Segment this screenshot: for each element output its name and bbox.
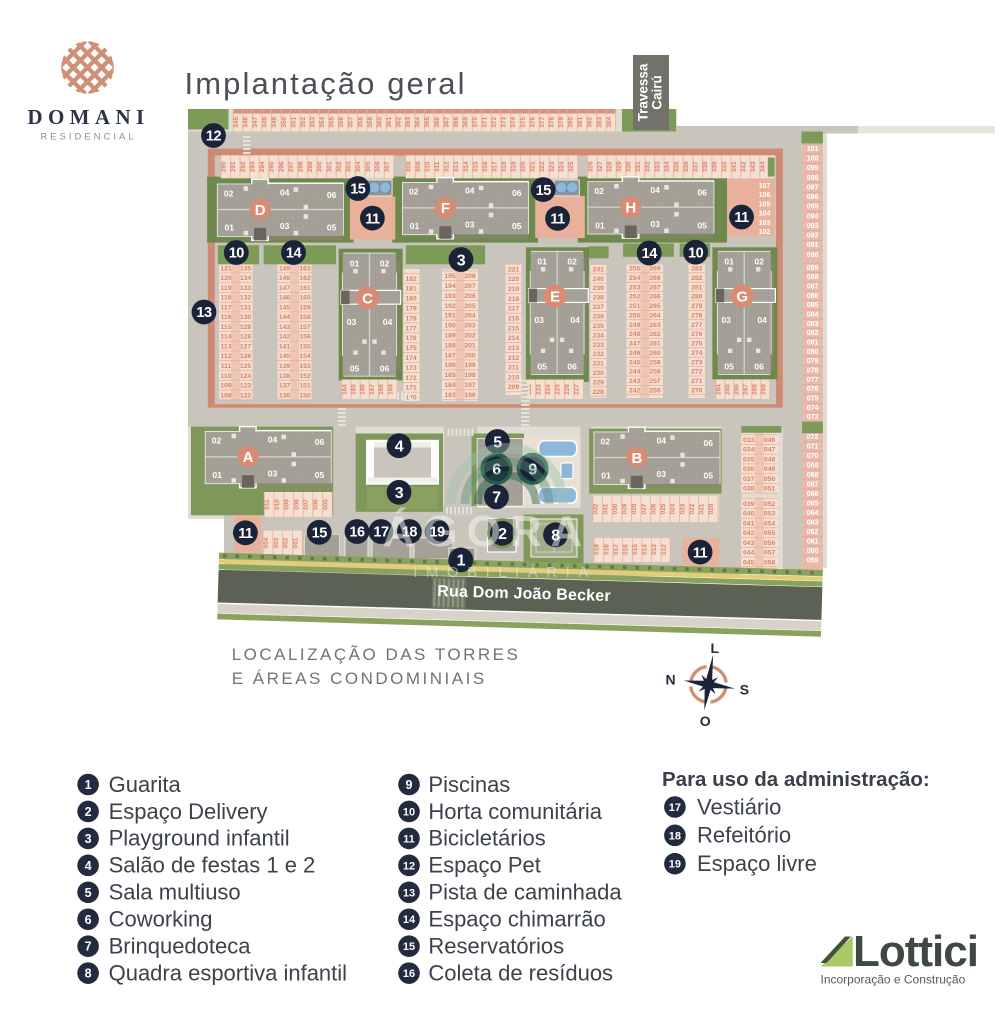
svg-text:027: 027 [641,503,648,514]
svg-text:6: 6 [85,913,92,927]
svg-text:134: 134 [240,275,252,282]
svg-text:383: 383 [596,117,603,128]
svg-text:370: 370 [472,117,479,128]
svg-text:187: 187 [444,352,456,359]
svg-text:213: 213 [508,345,520,352]
svg-text:05: 05 [350,363,360,373]
svg-text:275: 275 [691,341,703,348]
svg-text:115: 115 [221,324,232,331]
svg-text:013: 013 [651,544,658,555]
svg-text:306: 306 [374,161,381,172]
svg-text:05: 05 [512,221,522,231]
svg-text:8: 8 [85,967,92,981]
svg-text:05: 05 [724,362,734,372]
svg-text:140: 140 [279,353,291,360]
svg-text:351: 351 [290,117,297,128]
svg-text:025: 025 [660,503,667,514]
svg-text:319: 319 [511,161,518,172]
svg-text:227: 227 [574,384,581,395]
svg-text:D: D [255,202,266,219]
svg-text:085: 085 [807,302,819,309]
svg-text:098: 098 [807,175,819,182]
svg-text:04: 04 [383,317,393,327]
svg-text:313: 313 [453,161,460,172]
svg-text:11: 11 [693,545,708,561]
svg-text:117: 117 [221,304,232,311]
svg-text:089: 089 [807,265,819,272]
svg-text:2: 2 [85,805,92,819]
svg-text:199: 199 [464,362,476,369]
svg-text:369: 369 [462,117,469,128]
svg-text:077: 077 [807,377,819,384]
svg-text:171: 171 [405,385,417,392]
svg-text:152: 152 [299,373,311,380]
svg-text:Para uso da administração:: Para uso da administração: [662,768,930,791]
svg-text:334: 334 [664,161,671,172]
svg-text:203: 203 [464,323,476,330]
svg-text:148: 148 [279,275,291,282]
svg-text:261: 261 [649,341,661,348]
svg-text:03: 03 [465,220,475,230]
svg-text:359: 359 [367,117,374,128]
svg-text:Salão de festas 1 e 2: Salão de festas 1 e 2 [109,853,316,878]
svg-text:04: 04 [657,435,667,445]
svg-text:024: 024 [670,503,677,514]
svg-text:317: 317 [491,161,498,172]
svg-text:03: 03 [347,317,357,327]
svg-text:Horta comunitária: Horta comunitária [428,799,602,824]
svg-text:271: 271 [691,378,703,385]
svg-text:026: 026 [650,503,657,514]
svg-text:LOCALIZAÇÃO DAS TORRES: LOCALIZAÇÃO DAS TORRES [232,645,521,664]
svg-text:104: 104 [759,211,771,218]
svg-text:035: 035 [743,456,755,463]
svg-text:009: 009 [284,499,291,510]
svg-text:281: 281 [691,284,703,291]
svg-text:048: 048 [764,456,776,463]
svg-text:063: 063 [807,519,819,526]
svg-text:340: 340 [721,161,728,172]
svg-text:342: 342 [740,161,747,172]
svg-text:G: G [736,289,748,306]
svg-text:Coworking: Coworking [109,907,213,932]
svg-text:283: 283 [691,266,703,273]
svg-text:292: 292 [240,161,247,172]
svg-text:059: 059 [807,557,819,564]
svg-text:3: 3 [457,252,466,269]
svg-text:298: 298 [298,161,305,172]
svg-text:204: 204 [464,313,476,320]
svg-text:086: 086 [807,293,819,300]
svg-text:051: 051 [764,486,776,493]
svg-text:381: 381 [577,117,584,128]
svg-text:377: 377 [539,117,546,128]
svg-text:330: 330 [626,161,633,172]
svg-text:157: 157 [299,324,311,331]
svg-text:039: 039 [743,501,755,508]
svg-text:05: 05 [704,471,714,481]
svg-text:295: 295 [269,161,276,172]
svg-text:04: 04 [465,186,475,196]
svg-text:226: 226 [564,384,571,395]
svg-text:274: 274 [691,350,703,357]
svg-text:343: 343 [750,161,757,172]
svg-text:150: 150 [299,392,311,399]
svg-text:348: 348 [262,117,269,128]
svg-text:143: 143 [279,324,291,331]
svg-text:380: 380 [568,117,575,128]
svg-text:158: 158 [299,314,311,321]
svg-text:248: 248 [629,331,641,338]
svg-text:338: 338 [702,161,709,172]
svg-text:04: 04 [650,185,660,195]
svg-text:04: 04 [280,187,290,197]
svg-text:144: 144 [279,314,291,321]
svg-text:06: 06 [754,362,764,372]
svg-text:15: 15 [536,183,552,199]
svg-text:309: 309 [415,161,422,172]
svg-text:06: 06 [380,363,390,373]
svg-text:112: 112 [221,353,232,360]
svg-text:311: 311 [434,161,441,172]
svg-text:327: 327 [597,161,604,172]
svg-text:Travessa: Travessa [636,63,651,121]
svg-text:Refeitório: Refeitório [697,823,791,848]
svg-text:320: 320 [520,161,527,172]
svg-text:210: 210 [508,374,520,381]
svg-text:355: 355 [329,117,336,128]
svg-text:197: 197 [464,382,476,389]
svg-text:230: 230 [593,370,605,377]
svg-text:384: 384 [606,117,613,128]
svg-text:14: 14 [403,914,416,926]
svg-text:366: 366 [434,117,441,128]
svg-text:365: 365 [424,117,431,128]
svg-text:139: 139 [279,363,291,370]
svg-text:214: 214 [508,335,520,342]
svg-text:305: 305 [365,161,372,172]
svg-text:9: 9 [406,778,413,792]
svg-text:367: 367 [443,117,450,128]
svg-text:362: 362 [396,117,403,128]
svg-text:235: 235 [593,323,605,330]
svg-text:219: 219 [508,286,520,293]
svg-text:267: 267 [649,284,661,291]
svg-text:276: 276 [691,331,703,338]
svg-text:373: 373 [501,117,508,128]
svg-text:003: 003 [273,537,280,548]
svg-text:141: 141 [279,344,291,351]
svg-text:352: 352 [300,117,307,128]
svg-text:363: 363 [405,117,412,128]
svg-text:Quadra esportiva infantil: Quadra esportiva infantil [109,960,347,985]
svg-text:03: 03 [268,469,278,479]
svg-text:022: 022 [689,503,696,514]
svg-text:153: 153 [299,363,311,370]
svg-text:E ÁREAS CONDOMINIAIS: E ÁREAS CONDOMINIAIS [232,669,487,688]
svg-text:040: 040 [743,511,755,518]
svg-text:Vestiário: Vestiário [697,794,781,819]
svg-text:Coleta de resíduos: Coleta de resíduos [428,960,613,985]
svg-text:042: 042 [743,530,755,537]
svg-text:312: 312 [444,161,451,172]
svg-text:318: 318 [501,161,508,172]
svg-text:284: 284 [715,384,722,395]
svg-text:116: 116 [221,314,232,321]
svg-text:321: 321 [530,161,537,172]
svg-text:06: 06 [512,188,522,198]
svg-text:159: 159 [299,304,311,311]
svg-text:179: 179 [405,306,417,313]
svg-text:166: 166 [360,384,367,395]
svg-text:127: 127 [240,344,252,351]
svg-text:242: 242 [629,387,641,394]
svg-text:251: 251 [629,303,641,310]
svg-text:03: 03 [721,315,731,325]
svg-text:188: 188 [444,342,456,349]
svg-text:C: C [362,290,373,307]
svg-text:16: 16 [349,525,365,541]
svg-text:058: 058 [764,559,776,566]
svg-text:180: 180 [405,296,417,303]
svg-text:023: 023 [679,503,686,514]
svg-text:133: 133 [240,285,252,292]
svg-text:4: 4 [395,439,404,456]
svg-text:264: 264 [649,312,661,319]
svg-text:Reservatórios: Reservatórios [428,934,564,959]
svg-text:11: 11 [550,212,565,228]
svg-text:038: 038 [743,486,755,493]
svg-text:374: 374 [510,117,517,128]
svg-text:285: 285 [724,384,731,395]
svg-text:337: 337 [693,161,700,172]
svg-text:353: 353 [310,117,317,128]
svg-text:358: 358 [357,117,364,128]
svg-text:161: 161 [299,285,311,292]
svg-text:01: 01 [595,220,605,230]
svg-text:132: 132 [240,295,252,302]
svg-text:15: 15 [312,526,328,542]
svg-text:050: 050 [764,476,776,483]
svg-text:328: 328 [606,161,613,172]
svg-text:002: 002 [283,537,290,548]
svg-text:064: 064 [807,510,819,517]
svg-text:181: 181 [405,286,417,293]
svg-text:331: 331 [635,161,642,172]
svg-text:253: 253 [629,284,641,291]
svg-text:316: 316 [482,161,489,172]
svg-text:189: 189 [444,333,456,340]
svg-text:100: 100 [807,156,819,163]
svg-text:138: 138 [279,373,291,380]
svg-text:01: 01 [225,223,235,233]
svg-text:028: 028 [631,503,638,514]
svg-text:234: 234 [593,332,605,339]
svg-text:06: 06 [697,188,707,198]
svg-text:168: 168 [378,384,385,395]
svg-text:01: 01 [724,257,734,267]
svg-text:IMOBILIÁRIA: IMOBILIÁRIA [413,564,597,581]
svg-text:260: 260 [649,350,661,357]
svg-text:341: 341 [731,161,738,172]
svg-text:096: 096 [807,194,819,201]
svg-text:047: 047 [764,447,776,454]
svg-text:099: 099 [807,165,819,172]
svg-text:Sala multiuso: Sala multiuso [109,880,241,905]
svg-text:149: 149 [279,265,291,272]
svg-text:243: 243 [629,378,641,385]
svg-text:14: 14 [642,246,658,262]
svg-text:120: 120 [220,275,232,282]
svg-text:201: 201 [464,342,476,349]
svg-text:014: 014 [642,544,649,555]
svg-text:322: 322 [539,161,546,172]
svg-text:215: 215 [508,325,520,332]
svg-text:294: 294 [259,161,266,172]
svg-text:02: 02 [409,187,419,197]
svg-text:045: 045 [743,559,755,566]
svg-text:03: 03 [657,469,667,479]
svg-text:183: 183 [444,392,456,399]
svg-text:001: 001 [293,537,300,548]
svg-text:090: 090 [807,252,819,259]
svg-text:Cairú: Cairú [650,75,665,110]
svg-text:122: 122 [240,392,252,399]
svg-text:195: 195 [444,273,456,280]
svg-text:036: 036 [743,466,755,473]
svg-text:240: 240 [593,276,605,283]
svg-text:378: 378 [549,117,556,128]
svg-text:Incorporação e Construção: Incorporação e Construção [821,973,966,987]
svg-text:265: 265 [649,303,661,310]
svg-text:7: 7 [492,490,501,507]
svg-text:01: 01 [601,471,611,481]
svg-text:005: 005 [322,499,329,510]
svg-text:291: 291 [230,161,237,172]
svg-text:03: 03 [534,315,544,325]
svg-text:084: 084 [807,312,819,319]
svg-text:356: 356 [338,117,345,128]
svg-text:019: 019 [594,544,601,555]
svg-text:069: 069 [807,462,819,469]
svg-text:263: 263 [649,322,661,329]
svg-text:147: 147 [279,285,291,292]
svg-text:079: 079 [807,358,819,365]
svg-text:137: 137 [279,383,291,390]
svg-text:04: 04 [570,315,580,325]
svg-text:11: 11 [238,526,253,542]
svg-text:Espaço livre: Espaço livre [697,851,817,876]
svg-text:126: 126 [240,353,252,360]
svg-text:250: 250 [629,312,641,319]
svg-text:270: 270 [691,387,703,394]
svg-text:198: 198 [464,372,476,379]
svg-text:233: 233 [593,342,605,349]
svg-text:209: 209 [508,384,520,391]
svg-text:114: 114 [221,334,232,341]
svg-text:218: 218 [508,296,520,303]
svg-text:131: 131 [240,304,252,311]
svg-text:037: 037 [743,476,755,483]
svg-text:02: 02 [380,258,390,268]
svg-text:290: 290 [221,161,228,172]
svg-text:01: 01 [350,258,360,268]
svg-text:072: 072 [807,434,819,441]
svg-text:206: 206 [464,293,476,300]
svg-text:280: 280 [691,294,703,301]
svg-text:350: 350 [281,117,288,128]
svg-text:329: 329 [616,161,623,172]
svg-text:335: 335 [673,161,680,172]
svg-text:093: 093 [807,223,819,230]
svg-text:256: 256 [649,387,661,394]
svg-text:212: 212 [508,355,520,362]
svg-text:12: 12 [206,129,222,145]
svg-text:11: 11 [734,210,749,226]
svg-text:070: 070 [807,453,819,460]
svg-text:057: 057 [764,550,776,557]
svg-text:01: 01 [212,470,222,480]
svg-text:279: 279 [691,303,703,310]
svg-text:324: 324 [558,161,565,172]
svg-text:175: 175 [405,345,417,352]
svg-text:034: 034 [743,447,755,454]
svg-text:252: 252 [629,294,641,301]
svg-text:1: 1 [85,778,92,792]
svg-text:307: 307 [384,161,391,172]
svg-text:118: 118 [221,295,232,302]
svg-text:326: 326 [587,161,594,172]
svg-text:110: 110 [221,373,232,380]
svg-text:03: 03 [650,219,660,229]
svg-text:128: 128 [240,334,252,341]
svg-text:130: 130 [240,314,252,321]
svg-text:225: 225 [555,384,562,395]
svg-text:121: 121 [220,265,232,272]
svg-text:223: 223 [536,384,543,395]
svg-text:081: 081 [807,340,819,347]
svg-text:L: L [711,640,720,656]
svg-text:Espaço Pet: Espaço Pet [428,853,541,878]
svg-text:354: 354 [319,117,326,128]
svg-text:224: 224 [545,384,552,395]
svg-text:044: 044 [743,550,755,557]
svg-text:016: 016 [623,544,630,555]
svg-text:220: 220 [508,276,520,283]
svg-text:01: 01 [410,221,420,231]
svg-text:101: 101 [807,146,819,153]
svg-text:19: 19 [669,859,681,871]
svg-text:382: 382 [587,117,594,128]
svg-text:RESIDENCIAL: RESIDENCIAL [40,132,136,143]
svg-text:B: B [631,450,642,467]
svg-text:119: 119 [221,285,232,292]
svg-text:109: 109 [220,383,232,390]
svg-text:05: 05 [697,220,707,230]
svg-text:272: 272 [691,369,703,376]
svg-text:Playground infantil: Playground infantil [109,826,290,851]
svg-text:310: 310 [425,161,432,172]
svg-text:14: 14 [286,246,302,262]
svg-text:368: 368 [453,117,460,128]
svg-text:255: 255 [629,266,641,273]
svg-text:289: 289 [760,384,767,395]
svg-text:Piscinas: Piscinas [428,772,510,797]
svg-text:245: 245 [629,359,641,366]
svg-text:239: 239 [593,285,605,292]
svg-text:107: 107 [759,183,771,190]
svg-text:05: 05 [537,362,547,372]
